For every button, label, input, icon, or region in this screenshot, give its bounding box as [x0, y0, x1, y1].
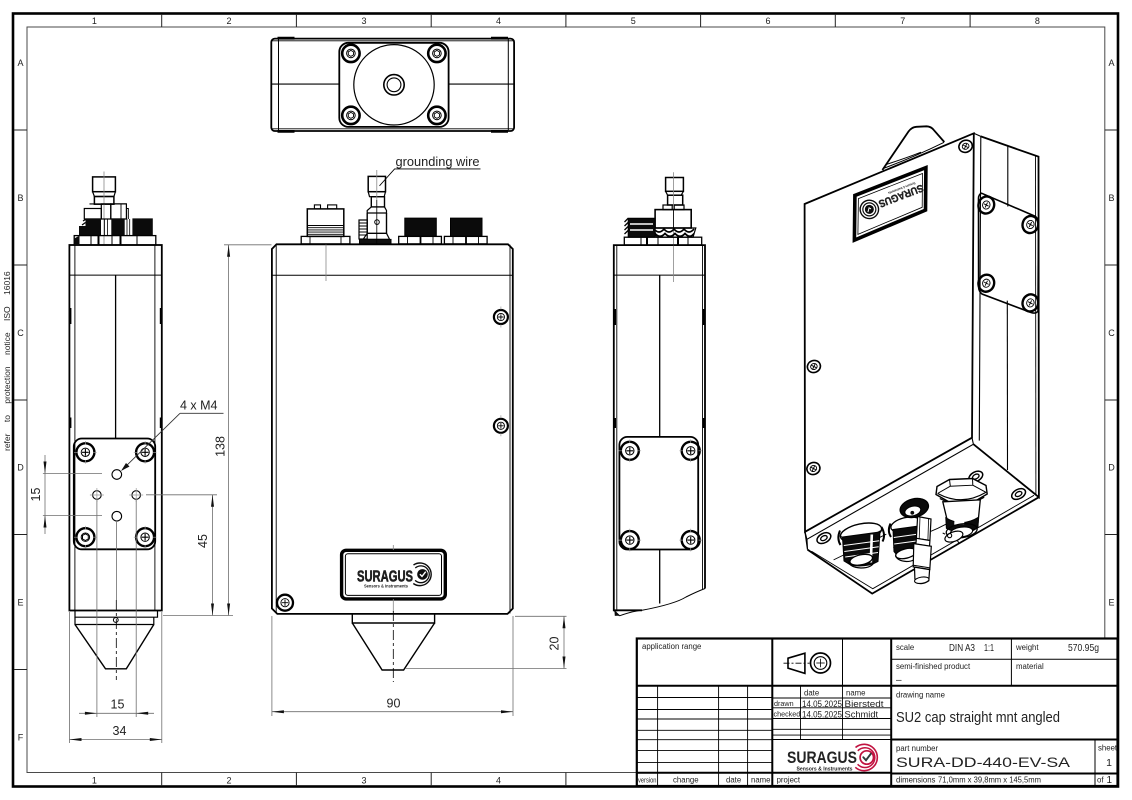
svg-text:C: C [17, 328, 24, 338]
svg-text:version: version [638, 776, 657, 785]
svg-text:2: 2 [226, 776, 231, 786]
svg-text:570.95g: 570.95g [1068, 642, 1099, 654]
svg-text:71,0mm x 39,8mm x 145,5mm: 71,0mm x 39,8mm x 145,5mm [938, 776, 1041, 785]
svg-text:C: C [1108, 328, 1115, 338]
svg-text:14.05.2025: 14.05.2025 [802, 699, 842, 709]
svg-text:date: date [804, 689, 819, 698]
svg-text:1: 1 [92, 16, 97, 26]
svg-text:Sensors & Instruments: Sensors & Instruments [364, 584, 408, 589]
svg-text:1: 1 [1106, 757, 1112, 769]
svg-text:Sensors & Instruments: Sensors & Instruments [797, 767, 853, 773]
svg-text:Schmidt: Schmidt [845, 709, 879, 719]
svg-text:B: B [17, 193, 23, 203]
svg-text:15: 15 [111, 698, 125, 712]
svg-text:Bierstedt: Bierstedt [845, 699, 884, 709]
svg-text:1:1: 1:1 [984, 642, 994, 654]
svg-text:name: name [751, 776, 771, 785]
svg-text:8: 8 [1035, 16, 1040, 26]
svg-text:D: D [1108, 463, 1115, 473]
svg-text:15: 15 [29, 488, 43, 502]
svg-text:–: – [896, 675, 902, 686]
svg-text:scale: scale [896, 643, 914, 652]
svg-text:E: E [17, 598, 23, 608]
svg-text:SURAGUS: SURAGUS [787, 749, 857, 767]
svg-text:3: 3 [361, 776, 366, 786]
svg-text:drawing name: drawing name [896, 691, 945, 700]
svg-text:1: 1 [92, 776, 97, 786]
svg-text:drawn: drawn [774, 699, 794, 708]
svg-text:part number: part number [896, 744, 938, 753]
svg-text:change: change [673, 776, 699, 785]
svg-text:4: 4 [496, 16, 501, 26]
svg-text:sheet: sheet [1098, 744, 1118, 753]
svg-text:5: 5 [631, 16, 636, 26]
svg-text:date: date [726, 776, 741, 785]
svg-text:A: A [1108, 58, 1114, 68]
svg-text:material: material [1016, 662, 1044, 671]
svg-text:1: 1 [1106, 775, 1112, 786]
svg-text:4 x M4: 4 x M4 [180, 399, 218, 413]
svg-text:2: 2 [226, 16, 231, 26]
svg-text:name: name [846, 689, 866, 698]
svg-text:45: 45 [196, 534, 210, 548]
svg-text:project: project [777, 776, 801, 785]
svg-text:SURA-DD-440-EV-SA: SURA-DD-440-EV-SA [896, 755, 1070, 770]
svg-text:A: A [17, 58, 23, 68]
svg-text:dimensions: dimensions [896, 776, 936, 785]
svg-text:6: 6 [765, 16, 770, 26]
svg-text:3: 3 [361, 16, 366, 26]
svg-text:B: B [1108, 193, 1114, 203]
svg-text:application range: application range [642, 642, 701, 651]
svg-text:14.05.2025: 14.05.2025 [802, 709, 842, 719]
svg-text:E: E [1108, 598, 1114, 608]
svg-text:4: 4 [496, 776, 501, 786]
svg-text:refer to protection notice ISO: refer to protection notice ISO 16016 [2, 271, 12, 451]
svg-text:weight: weight [1015, 643, 1039, 652]
svg-text:F: F [18, 733, 24, 743]
svg-text:DIN A3: DIN A3 [949, 642, 975, 654]
svg-text:20: 20 [548, 637, 562, 651]
svg-text:D: D [17, 463, 24, 473]
svg-text:7: 7 [900, 16, 905, 26]
svg-text:138: 138 [214, 436, 228, 457]
svg-text:grounding wire: grounding wire [396, 154, 480, 169]
svg-text:checked: checked [774, 710, 801, 719]
svg-text:of: of [1097, 776, 1104, 785]
svg-text:34: 34 [113, 724, 127, 738]
svg-text:SU2 cap straight mnt angled: SU2 cap straight mnt angled [896, 709, 1060, 726]
svg-text:semi-finished product: semi-finished product [896, 662, 971, 671]
svg-text:90: 90 [387, 696, 401, 710]
